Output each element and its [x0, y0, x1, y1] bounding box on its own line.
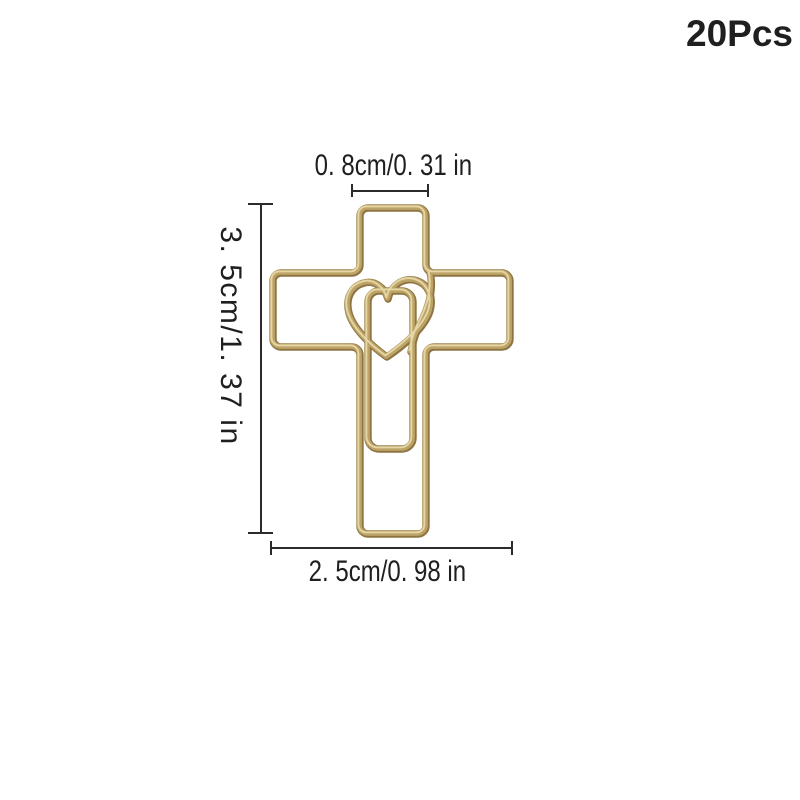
cross-heart-paperclip-photo [0, 0, 800, 800]
wire-shadow-layer [273, 208, 510, 534]
product-image-canvas: 20Pcs 0. 8cm/0. 31 in 3. 5cm/1. 37 in 2.… [0, 0, 800, 800]
wire-highlight-layer [271, 206, 508, 532]
wire-body-layer [272, 207, 509, 533]
